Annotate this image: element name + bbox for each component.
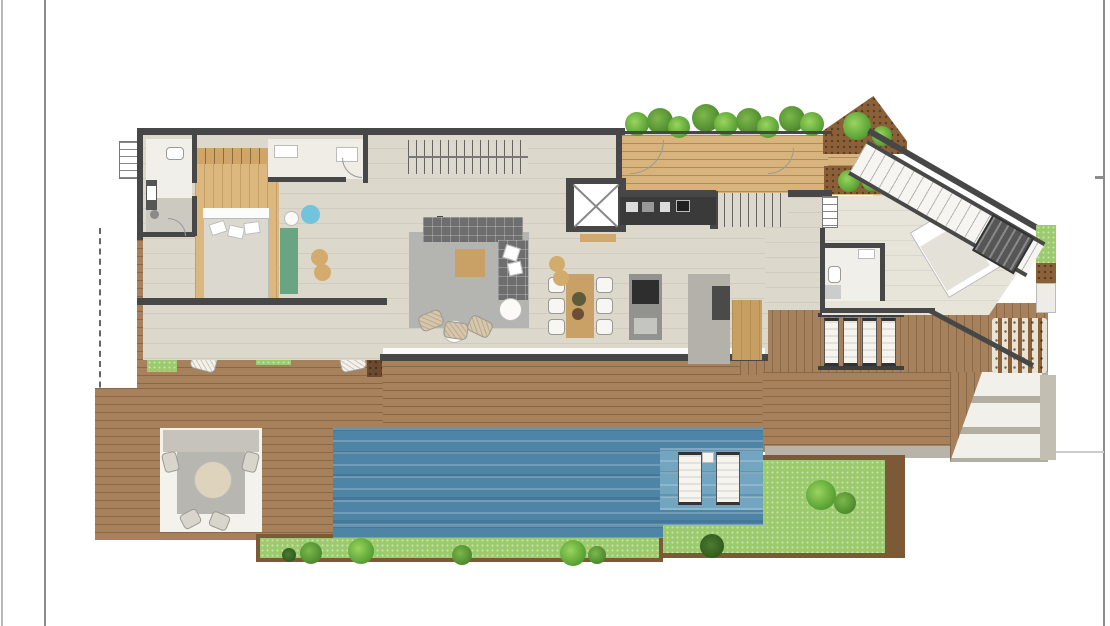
wall-kitchen-top [616, 190, 716, 197]
pouf-tan-2 [314, 264, 331, 281]
deck-right-lower [763, 372, 958, 452]
deck-below-living [383, 358, 768, 432]
bath2-shower [825, 285, 841, 299]
stairs-terrace [716, 193, 788, 227]
strip-bush-2 [348, 538, 374, 564]
armchair-blue [301, 205, 320, 224]
dining-chair-4 [596, 277, 613, 293]
coffee-table [455, 249, 485, 277]
page-border-right [1103, 0, 1105, 626]
lawn-bush-1 [806, 480, 836, 510]
sun-lounger-1 [824, 318, 839, 366]
wall-bath1-right-b [192, 196, 197, 236]
sun-deck-beam-bottom [818, 366, 904, 370]
pool-side-table [702, 452, 714, 463]
pool-deep-extension [333, 525, 663, 538]
strip-bush-3 [452, 545, 472, 565]
kitchen-appliance-2 [642, 202, 654, 212]
strip-bush-6 [282, 548, 296, 562]
page-border-right-tick [1095, 176, 1104, 179]
page-border-left-outer [1, 0, 3, 626]
wall-hall-divider [363, 135, 368, 183]
closet-box-1 [274, 145, 298, 158]
terrace-plant-3 [668, 116, 690, 138]
bath1-shower-drain [150, 210, 159, 219]
strip-bush-1 [300, 542, 322, 564]
wardrobe-strip [196, 148, 278, 164]
wall-left [137, 128, 143, 240]
island-cooktop [632, 280, 659, 304]
wall-bath1-right-a [192, 135, 197, 183]
sun-lounger-4 [881, 318, 896, 366]
stairs-main-rail [408, 156, 528, 158]
dining-chair-3 [548, 319, 565, 335]
sun-lounger-2 [843, 318, 858, 366]
closet-wall [268, 177, 346, 182]
bath2-wall-top [820, 243, 885, 248]
bath2-sink [858, 249, 875, 259]
bath2-wall-right [880, 243, 885, 301]
kitchen-appliance-3 [660, 202, 670, 212]
floor-seat-2 [443, 320, 469, 340]
mulch-bush-1 [843, 112, 871, 140]
bath1-sink [147, 186, 156, 200]
island-sink [634, 318, 657, 334]
wall-terrace-top-line [620, 131, 832, 134]
pouf-white-1 [499, 298, 522, 321]
kitchen-oven [676, 200, 690, 212]
pool-lounger-2 [716, 452, 740, 505]
table-decor-2 [572, 308, 584, 320]
table-decor-1 [572, 292, 586, 306]
dining-chair-2 [548, 298, 565, 314]
sun-lounger-3 [862, 318, 877, 366]
strip-bush-4 [560, 540, 586, 566]
dining-chair-5 [596, 298, 613, 314]
planter-column-right-steps [1036, 283, 1056, 313]
bath2-toilet [828, 266, 841, 283]
bed-headboard [203, 208, 269, 218]
bed-pillow-3 [243, 221, 261, 235]
dining-table [566, 274, 594, 338]
sofa-top-section [423, 217, 523, 242]
bath1-toilet [166, 147, 184, 160]
retaining-wall-right [1040, 375, 1056, 460]
lawn-bush-3 [700, 534, 724, 558]
bedside-table [284, 211, 299, 226]
pouf-tan-4 [553, 270, 569, 286]
kitchen-tall-appliance [712, 286, 730, 320]
wall-bedroom-bottom [137, 298, 387, 305]
patio-table [194, 461, 232, 499]
dining-chair-6 [596, 319, 613, 335]
property-dashed-line [99, 228, 101, 408]
floor-plan-page [0, 0, 1110, 626]
wall-top [137, 128, 625, 135]
strip-bush-5 [588, 546, 606, 564]
bench-green [280, 228, 298, 294]
elevator-mat [580, 234, 616, 242]
suite-ladder [822, 196, 838, 228]
wall-suite-bottom [820, 308, 935, 313]
patio-canopy [163, 430, 259, 452]
pool-lounger-1 [678, 452, 702, 505]
kitchen-appliance-1 [626, 202, 638, 212]
page-border-left-inner [44, 0, 46, 626]
planter-column-right-mulch [1036, 263, 1056, 283]
pantry-wood-unit [732, 300, 762, 360]
lawn-bush-2 [834, 492, 856, 514]
terrace-plant-7 [757, 116, 779, 138]
